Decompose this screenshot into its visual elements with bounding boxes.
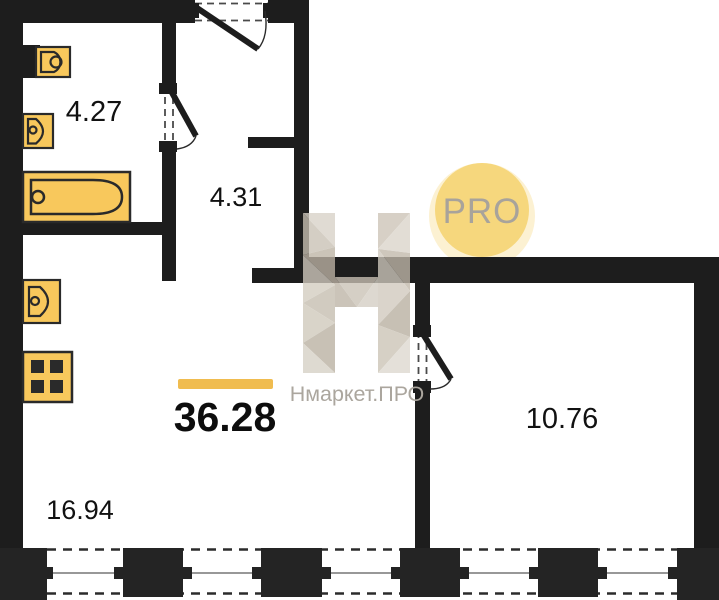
window-frame-tick	[460, 567, 469, 579]
wall-niche-stub	[248, 137, 294, 148]
wall-top-left	[0, 0, 195, 23]
floor-plan: PRO	[0, 0, 719, 600]
wall-left	[0, 0, 23, 548]
window-pillar	[123, 548, 183, 597]
window-pillar	[538, 548, 598, 597]
window-corner-left	[0, 548, 47, 600]
window-frame-tick	[529, 567, 538, 579]
bedroom-area-label: 10.76	[526, 403, 599, 435]
bathroom-door	[159, 83, 196, 152]
bathroom-area-label: 4.27	[66, 96, 122, 128]
wall-bathroom-bottom	[23, 222, 176, 235]
wall-bedroom-upper	[415, 283, 430, 331]
entrance-door	[187, 3, 275, 49]
stove-icon	[23, 352, 72, 402]
pro-badge-label: PRO	[443, 192, 522, 231]
window-frame-tick	[322, 567, 331, 579]
door-swing-arc	[177, 136, 196, 149]
total-area-label: 36.28	[174, 394, 277, 440]
pro-badge: PRO	[429, 163, 535, 269]
bathtub-icon	[23, 172, 130, 222]
window-frame-tick	[44, 567, 53, 579]
kitchen-sink-icon	[23, 280, 60, 323]
door-leaf	[197, 8, 258, 49]
window-corner-right	[677, 548, 719, 600]
door-hinge	[263, 3, 275, 18]
total-area: 36.28	[174, 379, 277, 440]
door-swing-arc	[430, 379, 451, 389]
wall-bedroom-lower	[415, 387, 430, 548]
window-frame-tick	[391, 567, 400, 579]
window-pillar	[261, 548, 322, 597]
brand-name-label: Нмаркет.ПРО	[290, 382, 425, 406]
window-frame-tick	[183, 567, 192, 579]
living-kitchen-area-label: 16.94	[46, 495, 114, 525]
brand-logo-letter	[303, 213, 410, 373]
window-pillar	[400, 548, 460, 597]
window-frame-tick	[252, 567, 261, 579]
hallway-area-label: 4.31	[210, 182, 263, 212]
wall-bathroom-lower	[162, 150, 176, 281]
bathroom-sink-icon	[23, 114, 53, 148]
toilet-icon	[36, 47, 70, 77]
window-frame-tick	[114, 567, 123, 579]
total-area-accent-bar	[178, 379, 273, 389]
wall-bathroom-upper	[162, 23, 176, 85]
window-frame-tick	[598, 567, 607, 579]
window-frame-tick	[668, 567, 677, 579]
door-hinge	[159, 141, 177, 152]
